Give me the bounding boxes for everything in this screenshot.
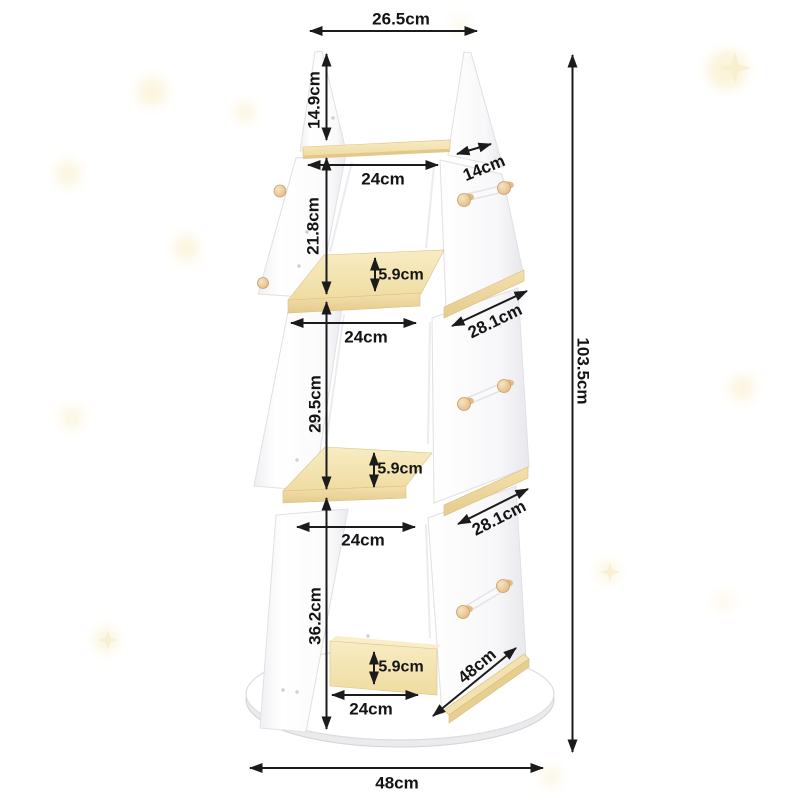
peg — [497, 580, 510, 593]
right-panel-tier1 — [448, 52, 503, 167]
dim-shelf3-width-label: 24cm — [341, 531, 384, 550]
peg — [458, 398, 471, 411]
dim-shelf4-width-label: 24cm — [349, 700, 392, 719]
diagram-canvas: 26.5cm 14.9cm 24cm 14cm 21.8cm 5.9cm 24c… — [0, 0, 800, 800]
knob — [274, 185, 286, 197]
peg — [457, 606, 470, 619]
dim-shelf1-width-label: 24cm — [361, 170, 404, 189]
peg — [498, 182, 511, 195]
knob — [258, 278, 269, 289]
inner-edge-hints — [324, 162, 434, 638]
dim-tier2-height-label: 21.8cm — [304, 197, 323, 255]
dim-tier2-lip-label: 5.9cm — [378, 267, 423, 284]
peg — [498, 380, 511, 393]
dim-tier3-height-label: 29.5cm — [306, 375, 325, 433]
dim-top-width-label: 26.5cm — [372, 10, 430, 29]
peg — [458, 194, 471, 207]
dim-shelf2-width-label: 24cm — [344, 328, 387, 347]
product-dimension-diagram: 26.5cm 14.9cm 24cm 14cm 21.8cm 5.9cm 24c… — [0, 0, 800, 800]
dim-base-width-label: 48cm — [375, 774, 418, 793]
dim-tier4-height-label: 36.2cm — [306, 587, 325, 645]
dim-total-height-label: 103.5cm — [574, 337, 593, 404]
dim-tier4-lip-label: 5.9cm — [378, 659, 423, 676]
dim-tier1-height-label: 14.9cm — [305, 71, 324, 129]
dim-tier3-lip-label: 5.9cm — [377, 461, 422, 478]
